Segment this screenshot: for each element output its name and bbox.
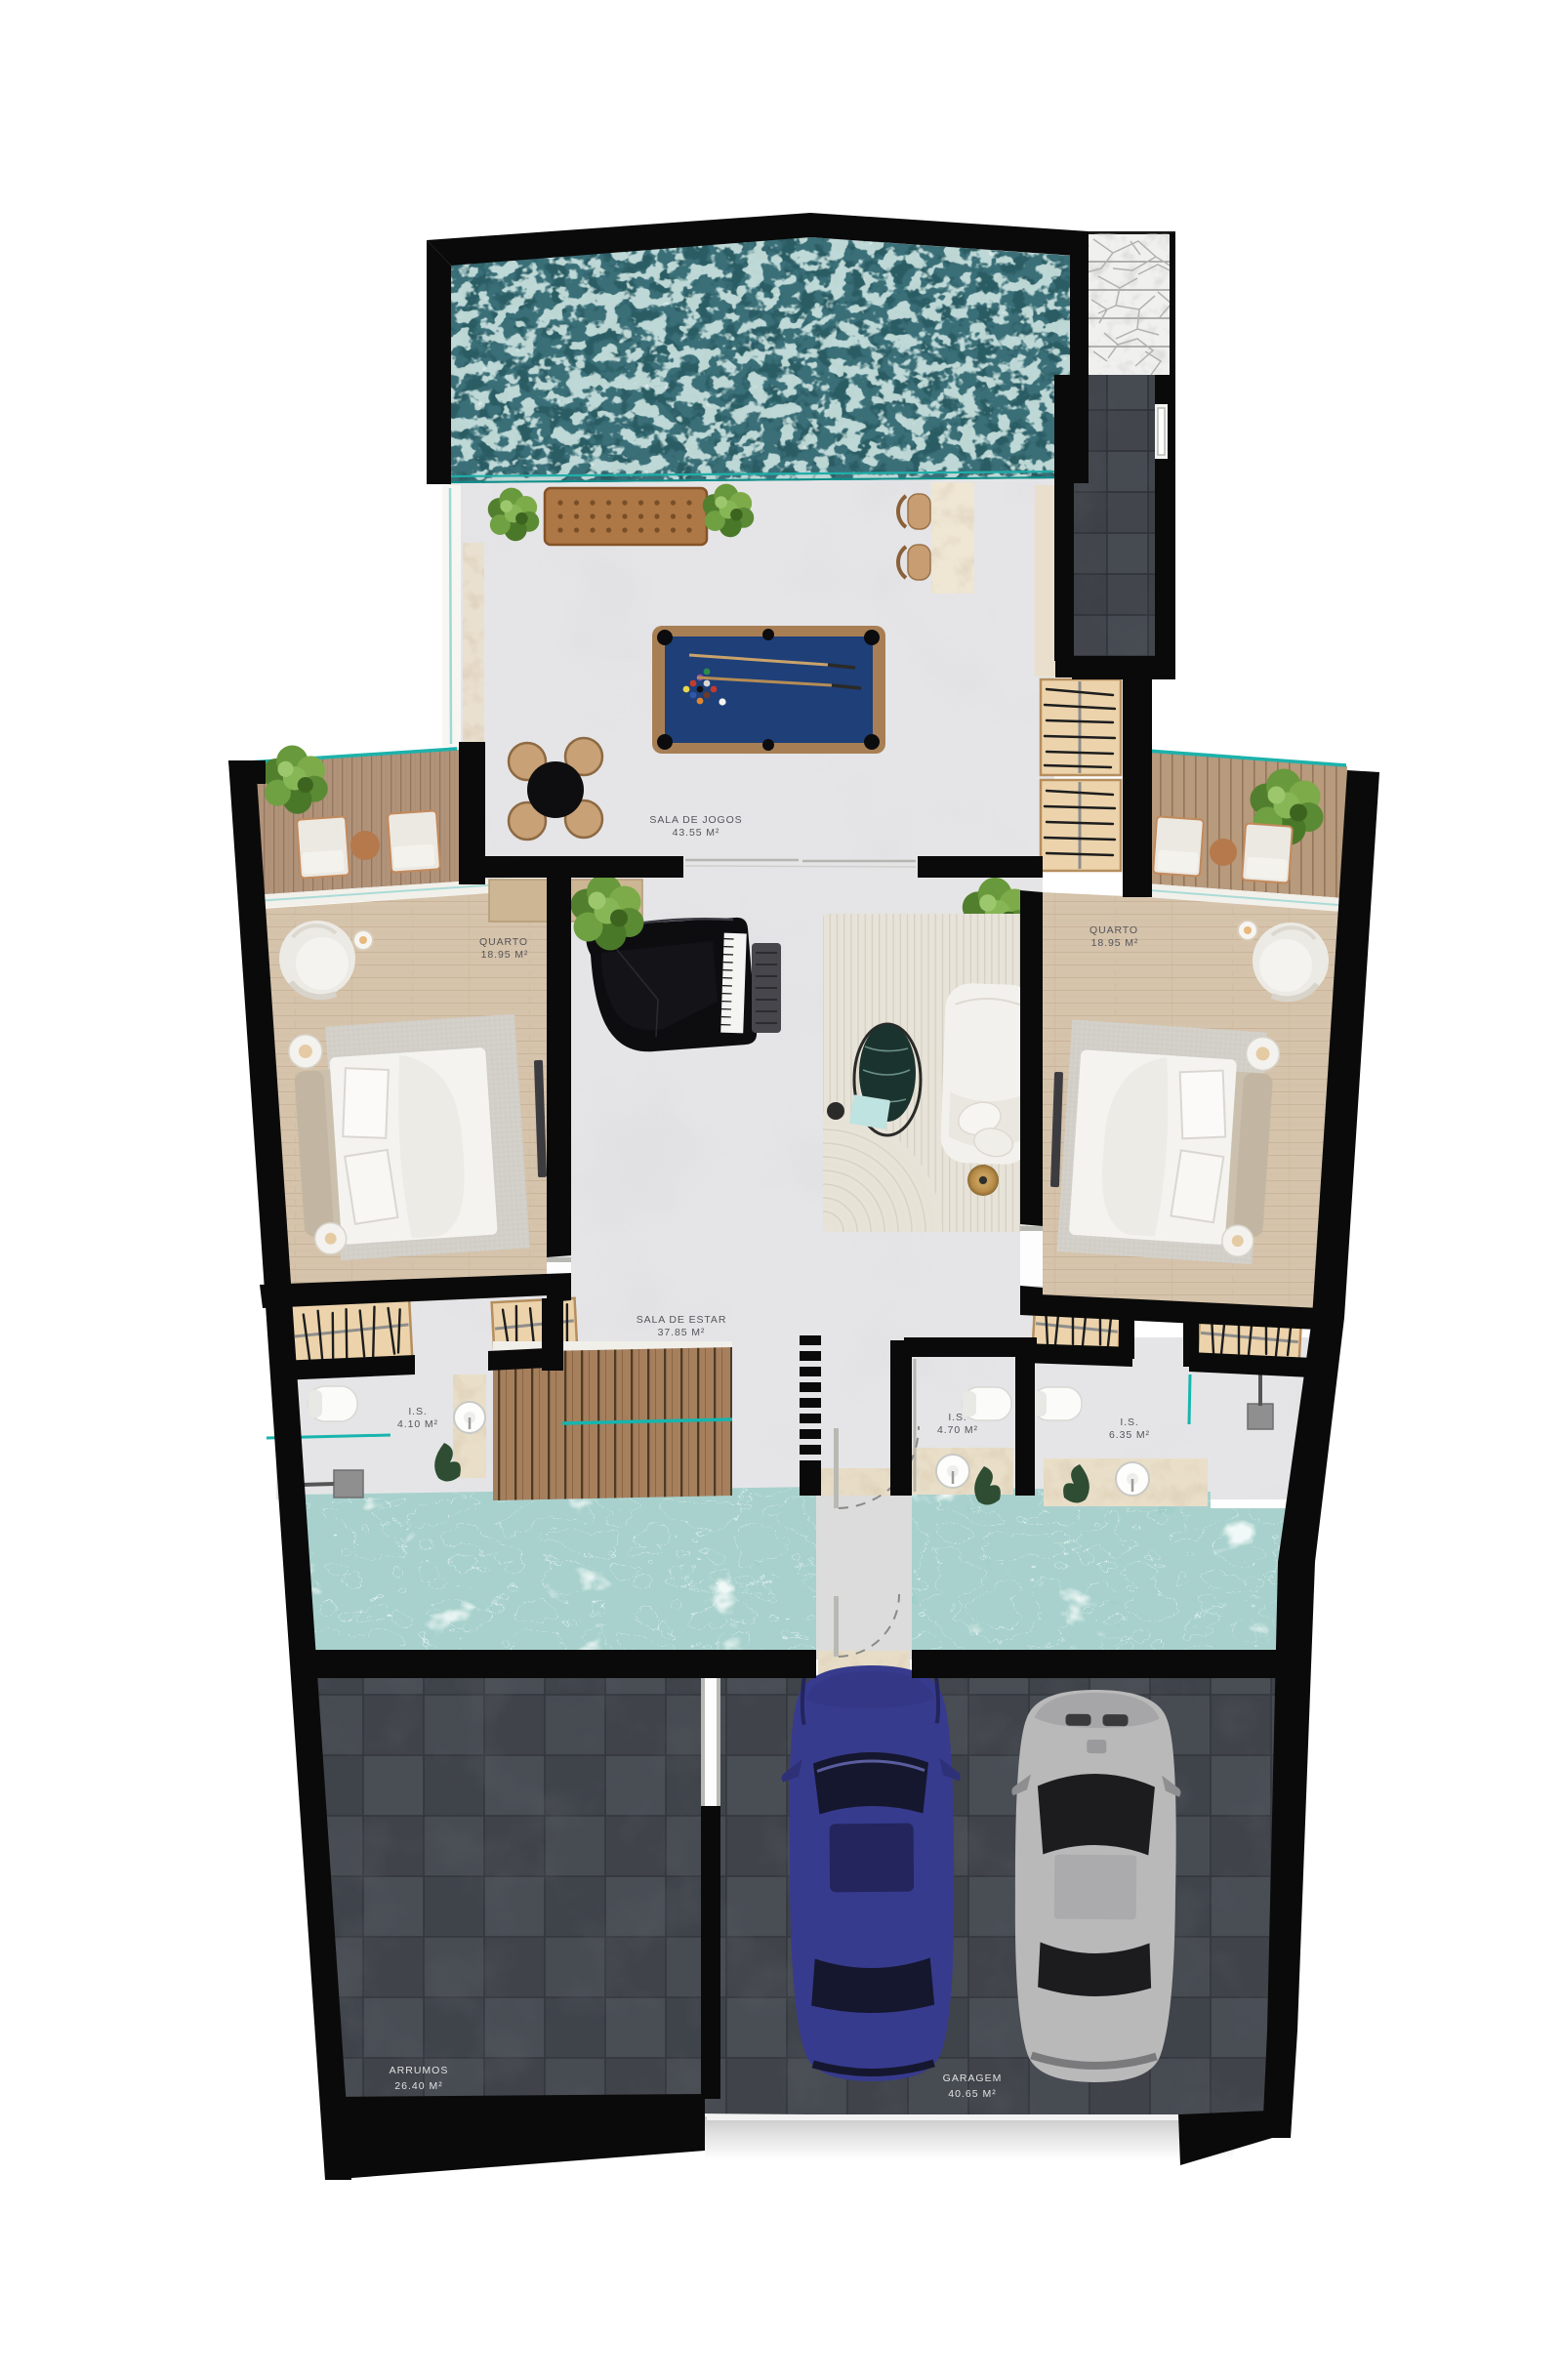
svg-text:4.70 M²: 4.70 M² bbox=[937, 1424, 978, 1436]
svg-text:SALA DE JOGOS: SALA DE JOGOS bbox=[649, 814, 742, 826]
svg-text:I.S.: I.S. bbox=[948, 1412, 966, 1423]
svg-text:I.S.: I.S. bbox=[408, 1406, 427, 1417]
svg-text:SALA DE ESTAR: SALA DE ESTAR bbox=[637, 1314, 727, 1326]
svg-text:GARAGEM: GARAGEM bbox=[943, 2072, 1003, 2084]
svg-text:I.S.: I.S. bbox=[1120, 1416, 1138, 1428]
svg-text:40.65 M²: 40.65 M² bbox=[948, 2088, 996, 2100]
svg-text:4.10 M²: 4.10 M² bbox=[397, 1418, 438, 1430]
svg-text:6.35 M²: 6.35 M² bbox=[1109, 1429, 1150, 1441]
svg-text:ARRUMOS: ARRUMOS bbox=[390, 2065, 449, 2076]
svg-text:18.95 M²: 18.95 M² bbox=[481, 949, 529, 961]
svg-text:37.85 M²: 37.85 M² bbox=[658, 1327, 706, 1338]
svg-text:18.95 M²: 18.95 M² bbox=[1091, 937, 1139, 949]
svg-text:26.40 M²: 26.40 M² bbox=[394, 2080, 442, 2092]
svg-text:QUARTO: QUARTO bbox=[1089, 924, 1138, 936]
svg-text:QUARTO: QUARTO bbox=[479, 936, 528, 948]
svg-text:43.55 M²: 43.55 M² bbox=[673, 827, 720, 839]
